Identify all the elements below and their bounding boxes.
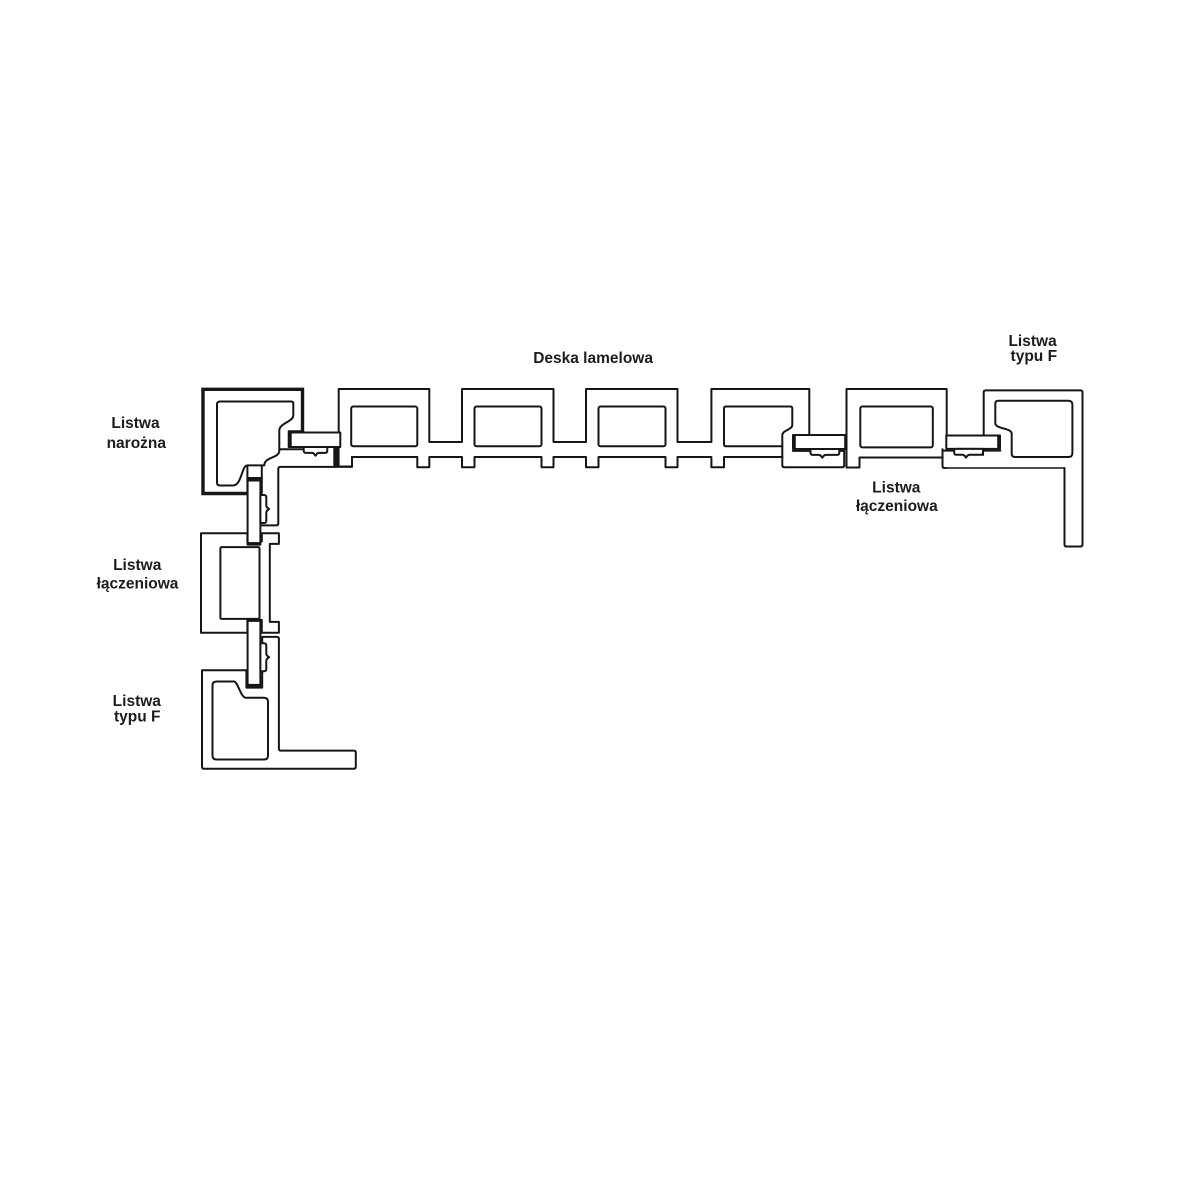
svg-text:Listwa: Listwa <box>113 693 162 710</box>
svg-text:Listwa: Listwa <box>111 415 160 432</box>
svg-text:Deska lamelowa: Deska lamelowa <box>533 350 653 367</box>
svg-text:łączeniowa: łączeniowa <box>856 498 938 515</box>
svg-text:Listwa: Listwa <box>113 557 162 574</box>
svg-text:typu F: typu F <box>1011 348 1058 365</box>
svg-text:łączeniowa: łączeniowa <box>97 575 179 592</box>
svg-text:typu F: typu F <box>114 708 161 725</box>
svg-text:Listwa: Listwa <box>872 479 921 496</box>
svg-text:narożna: narożna <box>107 435 167 452</box>
